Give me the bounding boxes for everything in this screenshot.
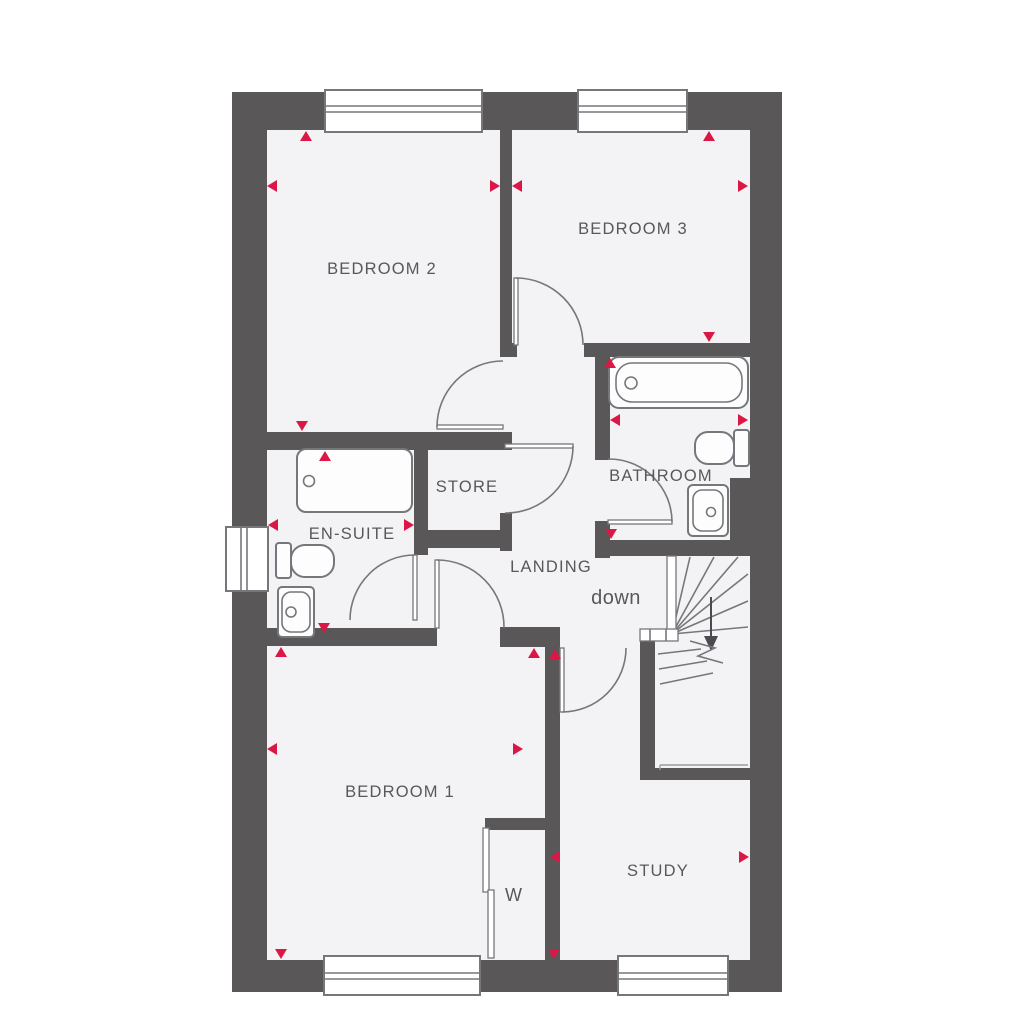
first-floor-plan: BEDROOM 2 BEDROOM 3 BATHROOM EN-SUITE ST…: [0, 0, 1024, 1024]
room-label-bedroom1: BEDROOM 1: [345, 783, 455, 801]
bath-icon: [609, 357, 748, 408]
room-label-landing: LANDING: [510, 558, 592, 576]
window-bedroom1: [324, 956, 480, 995]
toilet-icon: [695, 430, 749, 466]
stairs-direction-label: down: [591, 587, 641, 609]
window-study: [618, 956, 728, 995]
window-ensuite: [226, 527, 268, 591]
room-label-study: STUDY: [627, 862, 689, 880]
floorplan-canvas: BEDROOM 2 BEDROOM 3 BATHROOM EN-SUITE ST…: [0, 0, 1024, 1024]
ensuite-toilet-icon: [276, 543, 334, 578]
window-bedroom2: [325, 90, 482, 132]
room-label-bathroom: BATHROOM: [609, 467, 713, 485]
room-label-wardrobe: W: [505, 885, 523, 905]
ensuite-sink-icon: [278, 587, 314, 637]
room-label-bedroom2: BEDROOM 2: [327, 260, 437, 278]
basin-icon: [688, 485, 728, 536]
room-label-ensuite: EN-SUITE: [309, 525, 396, 543]
room-label-bedroom3: BEDROOM 3: [578, 220, 688, 238]
window-bedroom3: [578, 90, 687, 132]
room-label-store: STORE: [436, 478, 499, 496]
shower-tray-icon: [297, 449, 412, 512]
